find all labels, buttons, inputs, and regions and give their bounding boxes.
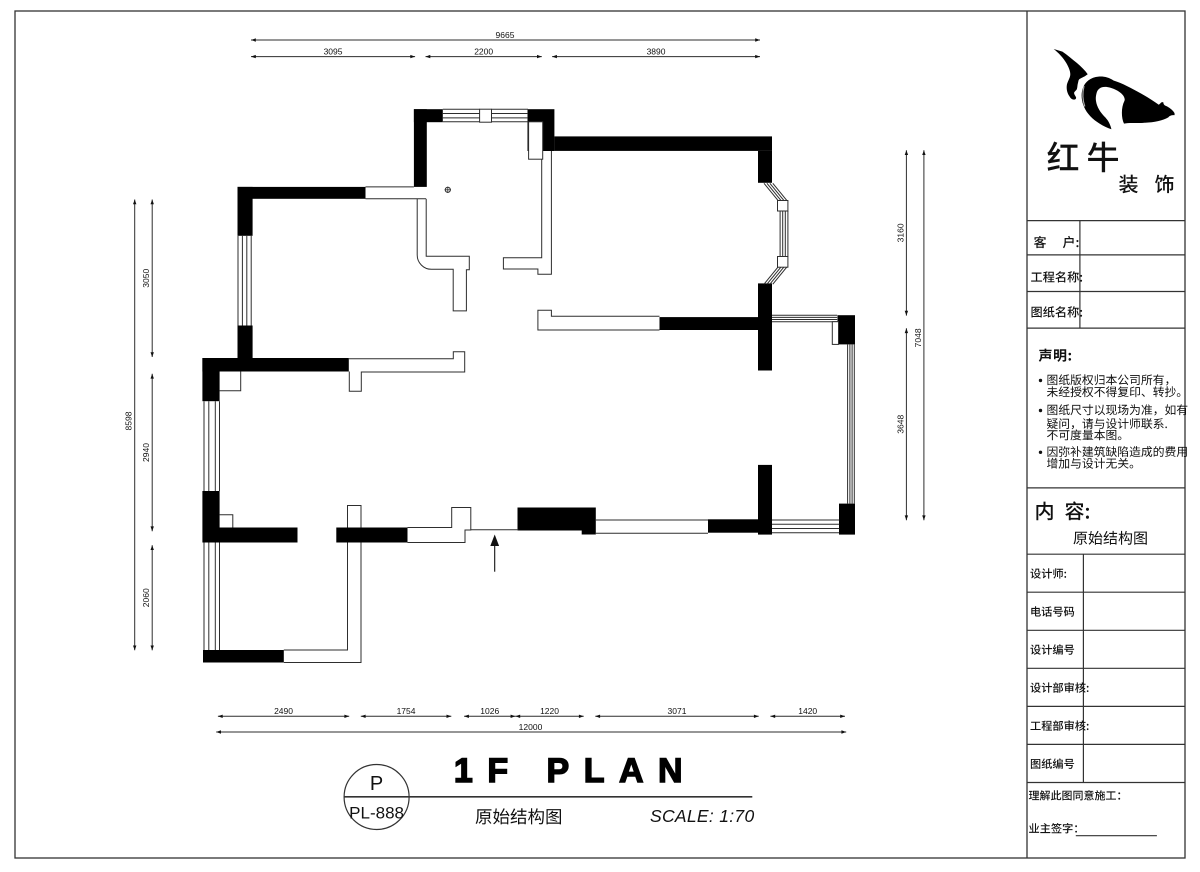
svg-text:P: P	[370, 773, 383, 795]
svg-text:1026: 1026	[480, 706, 499, 716]
svg-text:3160: 3160	[895, 223, 905, 242]
svg-text:SCALE: 1:70: SCALE: 1:70	[650, 806, 754, 826]
svg-text:2200: 2200	[474, 46, 493, 56]
svg-text:3095: 3095	[324, 46, 343, 56]
svg-text:1420: 1420	[798, 706, 817, 716]
svg-text:2060: 2060	[141, 588, 151, 607]
svg-text:9665: 9665	[496, 30, 515, 40]
svg-text:3890: 3890	[647, 46, 666, 56]
svg-text:1220: 1220	[540, 706, 559, 716]
svg-text:7048: 7048	[913, 328, 923, 347]
svg-text:2490: 2490	[274, 706, 293, 716]
svg-text:PL-888: PL-888	[349, 804, 404, 823]
svg-text:12000: 12000	[519, 722, 543, 732]
svg-text:1754: 1754	[397, 706, 416, 716]
svg-text:3071: 3071	[668, 706, 687, 716]
svg-text:1F PLAN: 1F PLAN	[454, 752, 697, 790]
svg-text:3648: 3648	[895, 415, 905, 434]
svg-text:8598: 8598	[124, 411, 134, 430]
svg-text:3050: 3050	[141, 269, 151, 288]
svg-text:2940: 2940	[141, 443, 151, 462]
